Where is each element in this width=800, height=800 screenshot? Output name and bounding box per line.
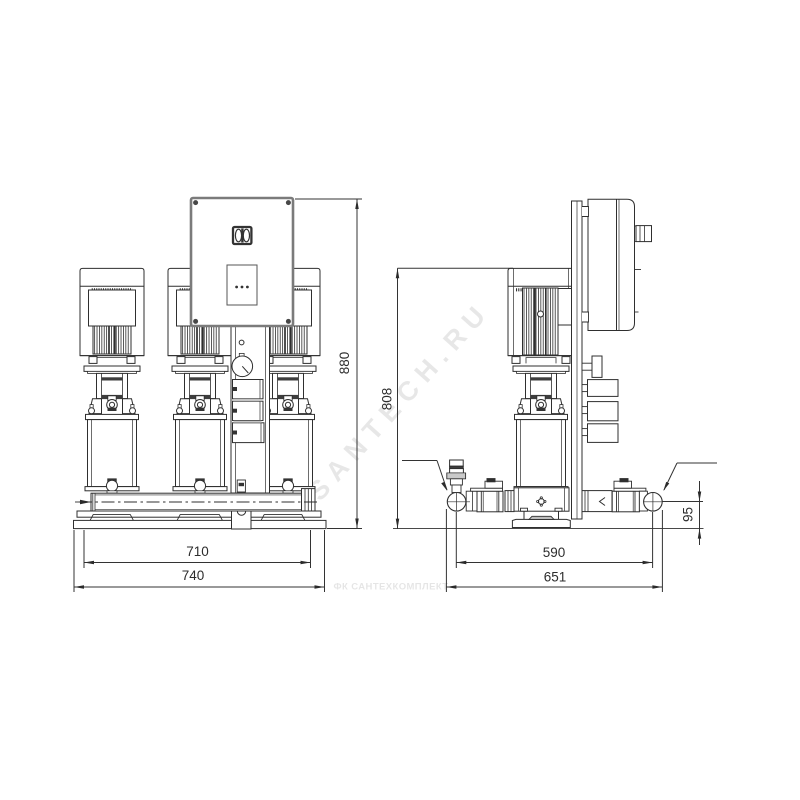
svg-text:590: 590 [543, 545, 566, 560]
svg-text:95: 95 [681, 507, 696, 522]
svg-text:651: 651 [544, 570, 567, 585]
svg-text:740: 740 [182, 568, 205, 583]
svg-text:808: 808 [380, 388, 395, 411]
svg-text:880: 880 [337, 352, 352, 375]
svg-text:710: 710 [186, 544, 209, 559]
svg-text:ФК САНТЕХКОМПЛЕКТ: ФК САНТЕХКОМПЛЕКТ [334, 582, 449, 593]
